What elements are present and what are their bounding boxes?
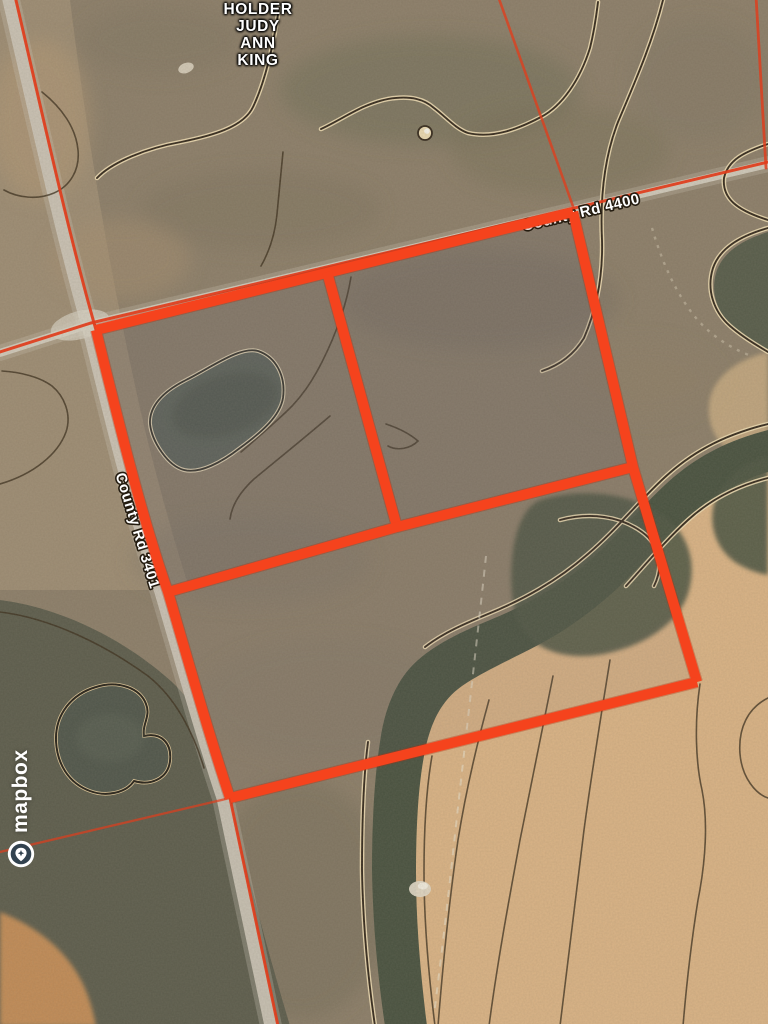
map-canvas[interactable]: County Rd 4400 County Rd 3401 HOLDER JUD… — [0, 0, 768, 1024]
mapbox-wordmark: mapbox — [9, 749, 33, 833]
mapbox-pin-icon — [7, 840, 35, 868]
mapbox-logo[interactable]: mapbox — [6, 708, 36, 868]
imagery-grain — [0, 0, 768, 1024]
